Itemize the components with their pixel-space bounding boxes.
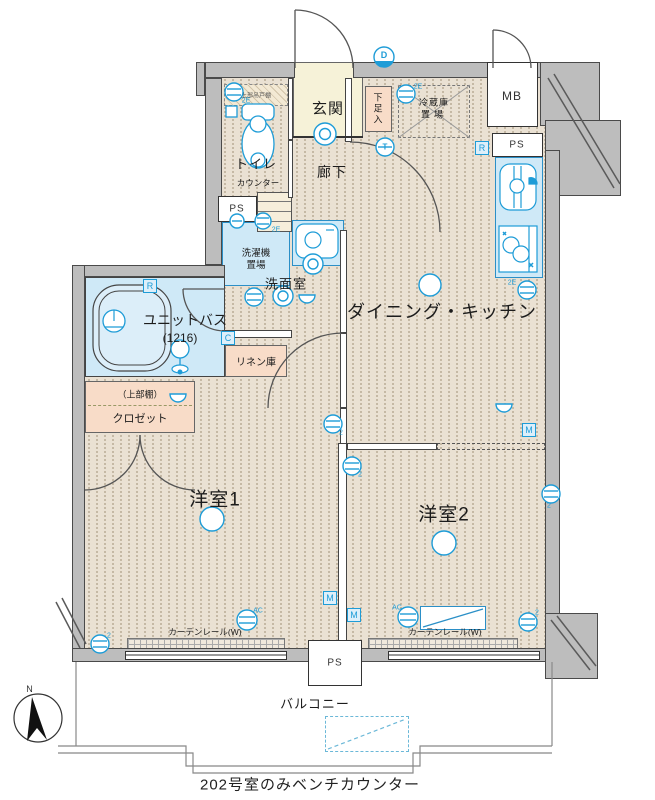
m-box-marker: M (323, 591, 337, 605)
window-room2 (388, 651, 540, 660)
doorbell-letter: D (381, 50, 388, 60)
entrance-door-arc (295, 10, 353, 68)
corridor-label: 廊下 (317, 162, 347, 182)
wall (288, 78, 293, 140)
genkan-label: 玄関 (312, 98, 344, 119)
fridge-label-2: 置場 (421, 108, 447, 121)
wall (345, 78, 352, 142)
curtain-rail-label-1: カーテンレール(W) (168, 626, 241, 638)
wall (72, 265, 225, 277)
linen-label: リネン庫 (236, 354, 276, 369)
m-box-marker: M (522, 423, 536, 437)
unit-bath-label: ユニットバス (143, 310, 227, 330)
wall (353, 62, 489, 78)
wall-dashed (437, 443, 545, 450)
outlet-2-label: 2 (358, 472, 362, 479)
outlet-2e-label: 2E (414, 84, 423, 91)
ac-outlet-label: AC (392, 605, 402, 612)
curtain-rail-label-2: カーテンレール(W) (408, 626, 481, 638)
ps-label-right: PS (509, 140, 524, 151)
balcony-outline (58, 662, 552, 773)
shoe-box-label: 下足入 (372, 93, 385, 126)
kitchen-counter (495, 157, 543, 278)
genkan-step-line (293, 136, 363, 138)
balcony-label: バルコニー (280, 694, 350, 713)
wall (288, 140, 293, 198)
closet-divider (88, 405, 192, 406)
m-box-marker: M (347, 608, 361, 622)
wall-corner-se (545, 613, 598, 679)
unit-bath-size-label: (1216) (163, 331, 198, 345)
floor-plan: 玄関 下足入 トイレ カウンター 上部吊戸棚 廊下 洗面室 洗濯機 置場 冷蔵庫… (0, 0, 655, 800)
wall (196, 62, 205, 96)
outlet-2-label: 2 (535, 610, 539, 617)
wall (340, 408, 347, 446)
compass-north-label: N (26, 684, 34, 694)
c-box-marker: C (221, 331, 235, 345)
laundry-label-2: 置場 (246, 257, 265, 271)
ps-label-left: PS (229, 204, 244, 215)
outlet-2e-label: 2E (272, 227, 281, 234)
wall (205, 78, 222, 265)
vanity-unit (292, 220, 344, 266)
washroom-label: 洗面室 (265, 274, 307, 293)
outside-mask (0, 0, 205, 265)
wall (205, 62, 295, 78)
dk-label: ダイニング・キッチン (347, 298, 537, 324)
wall-room-divider (338, 443, 347, 650)
closet-label: クロゼット (113, 410, 168, 426)
wall (340, 230, 347, 333)
toilet-counter-label: カウンター (237, 177, 280, 189)
door-leaf (340, 333, 347, 408)
ac-outlet-label: AC (253, 608, 263, 615)
room2-label: 洋室2 (418, 500, 470, 527)
outlet-2e-label: 2E (508, 280, 517, 287)
mb-label: MB (502, 89, 522, 103)
wall-corner-ne (540, 62, 600, 126)
ps-label-bottom: PS (327, 658, 342, 669)
ac-outdoor-unit (325, 716, 409, 752)
caption: 202号室のみベンチカウンター (200, 774, 420, 795)
wall-left (72, 265, 85, 655)
compass (14, 694, 62, 742)
wall-right (545, 150, 560, 650)
outlet-2-label: 2 (107, 633, 111, 640)
r-box-marker: R (475, 141, 489, 155)
room1-label: 洋室1 (189, 485, 241, 512)
wall (347, 443, 437, 450)
outlet-2-label: 2 (339, 430, 343, 437)
closet-shelf-label: （上部棚） (117, 388, 162, 401)
window-room1 (125, 651, 287, 660)
t-symbol-letter: T (383, 143, 388, 152)
outlet-2-label: 2 (547, 503, 551, 510)
toilet-label: トイレ (235, 154, 277, 173)
outlet-2e-label: 2E (242, 98, 251, 105)
r-box-marker: R (143, 279, 157, 293)
